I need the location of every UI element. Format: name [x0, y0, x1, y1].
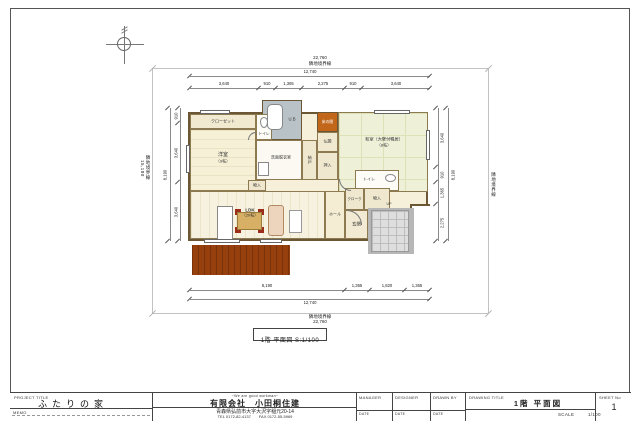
date-label: DATE [433, 412, 443, 416]
dim-top-seg: 3,640 [219, 82, 229, 87]
room-label-cloak: クローク [347, 197, 361, 201]
boundary-left-value: 15,180 [139, 160, 144, 177]
dim-line-top-overall [190, 76, 430, 77]
dim-line-right-overall [448, 108, 449, 241]
room-label-storage-entrance: 物入 [373, 197, 381, 202]
room-label-oshiire: 押入 [324, 164, 332, 169]
room-label-toilet-2: トイレ [363, 178, 375, 183]
dim-top-seg: 1,365 [283, 82, 293, 87]
boundary-bottom-value: 22,760 [313, 320, 327, 325]
room-label-genkan: 玄関 [352, 221, 361, 226]
bathtub [267, 104, 283, 130]
company-tel: TEL 0172-82-4137 FAX 0172-55-5969 [218, 414, 293, 420]
room-label-ub: U.B [289, 118, 296, 123]
boundary-top-label: 隣地境界線 [309, 62, 332, 67]
window [260, 239, 282, 243]
window [374, 110, 410, 114]
toilet-fixture [385, 174, 396, 182]
room-label-washitsu: 和室（大壁付鴨居） [365, 138, 403, 143]
room-label-washroom: 洗面脱衣室 [271, 156, 291, 161]
dim-bottom-seg: 1,365 [352, 284, 362, 289]
sheet-label: SHEET No [599, 395, 621, 400]
dim-right-seg: 2,275 [440, 217, 445, 227]
room-label-storage-small: 物入 [253, 183, 261, 188]
dim-left-seg: 3,640 [174, 147, 179, 157]
divider [466, 409, 595, 410]
room-label-butsuma: 仏間 [324, 140, 332, 145]
dim-line-left-segments [180, 108, 181, 241]
boundary-line-left [152, 68, 153, 313]
boundary-left-label: 隣地境界線 [145, 155, 150, 180]
window [204, 239, 240, 243]
designer-label: DESIGNER [395, 395, 418, 400]
room-label-washitsu-size: （8帖） [377, 144, 391, 149]
dim-left-overall: 8,190 [163, 169, 168, 179]
manager-label: MANAGER [359, 395, 381, 400]
memo-line [12, 415, 150, 416]
porch-tiles [371, 210, 409, 252]
room-label-tokonoma: 床の間 [322, 120, 333, 124]
dim-bottom-overall: 12,740 [304, 301, 317, 306]
titleblock-project-cell: PROJECT TITLE ふたりの家 MEMO [10, 393, 152, 421]
date-label: DATE [359, 412, 369, 416]
title-block: PROJECT TITLE ふたりの家 MEMO ~We are good wo… [10, 392, 631, 420]
wood-deck [192, 245, 290, 275]
plan-caption: 1階 平面図 S:1/100 [261, 338, 319, 344]
dim-left-seg: 910 [174, 112, 179, 119]
window [200, 110, 230, 114]
room-label-closet: クローゼット [211, 119, 235, 124]
dim-top-seg: 910 [350, 82, 357, 87]
dim-top-seg: 910 [264, 82, 271, 87]
dim-top-overall: 12,740 [304, 70, 317, 75]
titleblock-drawing-cell: DRAWING TITLE 1階 平面図 SCALE 1/100 [465, 393, 595, 421]
drawing-title: 1階 平面図 [514, 398, 562, 409]
date-label: DATE [395, 412, 405, 416]
dim-right-seg: 3,640 [440, 132, 445, 142]
titleblock-designer-cell: DESIGNER DATE [392, 393, 430, 421]
drawnby-label: DRAWN BY [433, 395, 457, 400]
boundary-line-top [152, 68, 488, 69]
dim-right-seg: 910 [440, 171, 445, 178]
sofa [268, 205, 284, 236]
dim-line-top-segments [190, 88, 430, 89]
scale-label: SCALE [558, 412, 574, 417]
room-label-bedroom-size: （9帖） [216, 160, 230, 165]
kitchen-counter [217, 206, 233, 240]
drawing-title-label: DRAWING TITLE [469, 395, 504, 400]
washbasin [258, 162, 269, 176]
titleblock-sheet-cell: SHEET No 1 [595, 393, 631, 421]
floor-plan: U.B クローゼット 洋室 （9帖） トイレ 洗面脱衣室 物入 納戸 床の間 仏… [188, 100, 434, 278]
window [426, 130, 430, 160]
plan-caption-box: 1階 平面図 S:1/100 [253, 328, 327, 341]
room-label-toilet-1: トイレ [258, 132, 269, 136]
room-label-nando: 納戸 [307, 156, 312, 165]
dim-top-seg: 3,640 [391, 82, 401, 87]
room-label-hall: ホール [329, 213, 341, 218]
boundary-line-right [488, 68, 489, 313]
dim-bottom-seg: 8,190 [262, 284, 272, 289]
memo-label: MEMO [13, 410, 27, 415]
dim-line-left-overall [170, 108, 171, 241]
north-arrow-icon [106, 26, 144, 64]
sheet-number: 1 [611, 402, 616, 412]
divider [10, 408, 152, 409]
dim-bottom-seg: 1,365 [412, 284, 422, 289]
titleblock-drawnby-cell: DRAWN BY DATE [430, 393, 465, 421]
dim-left-seg: 3,640 [174, 206, 179, 216]
window [186, 145, 190, 173]
dim-top-seg: 2,275 [318, 82, 328, 87]
titleblock-manager-cell: MANAGER DATE [356, 393, 392, 421]
label-up: UP [387, 202, 392, 206]
dim-right-overall: 8,190 [450, 169, 455, 179]
dim-line-bottom-segments [190, 290, 430, 291]
room-label-ldk-size: （20帖） [242, 214, 258, 219]
dim-bottom-seg: 1,820 [382, 284, 392, 289]
side-desk [289, 210, 302, 233]
dim-right-seg: 1,365 [440, 188, 445, 198]
boundary-right-label: 隣地境界線 [491, 172, 496, 197]
titleblock-company-cell: ~We are good workman~ 有限会社 小田桐住建 青森県弘前市大… [152, 393, 356, 421]
